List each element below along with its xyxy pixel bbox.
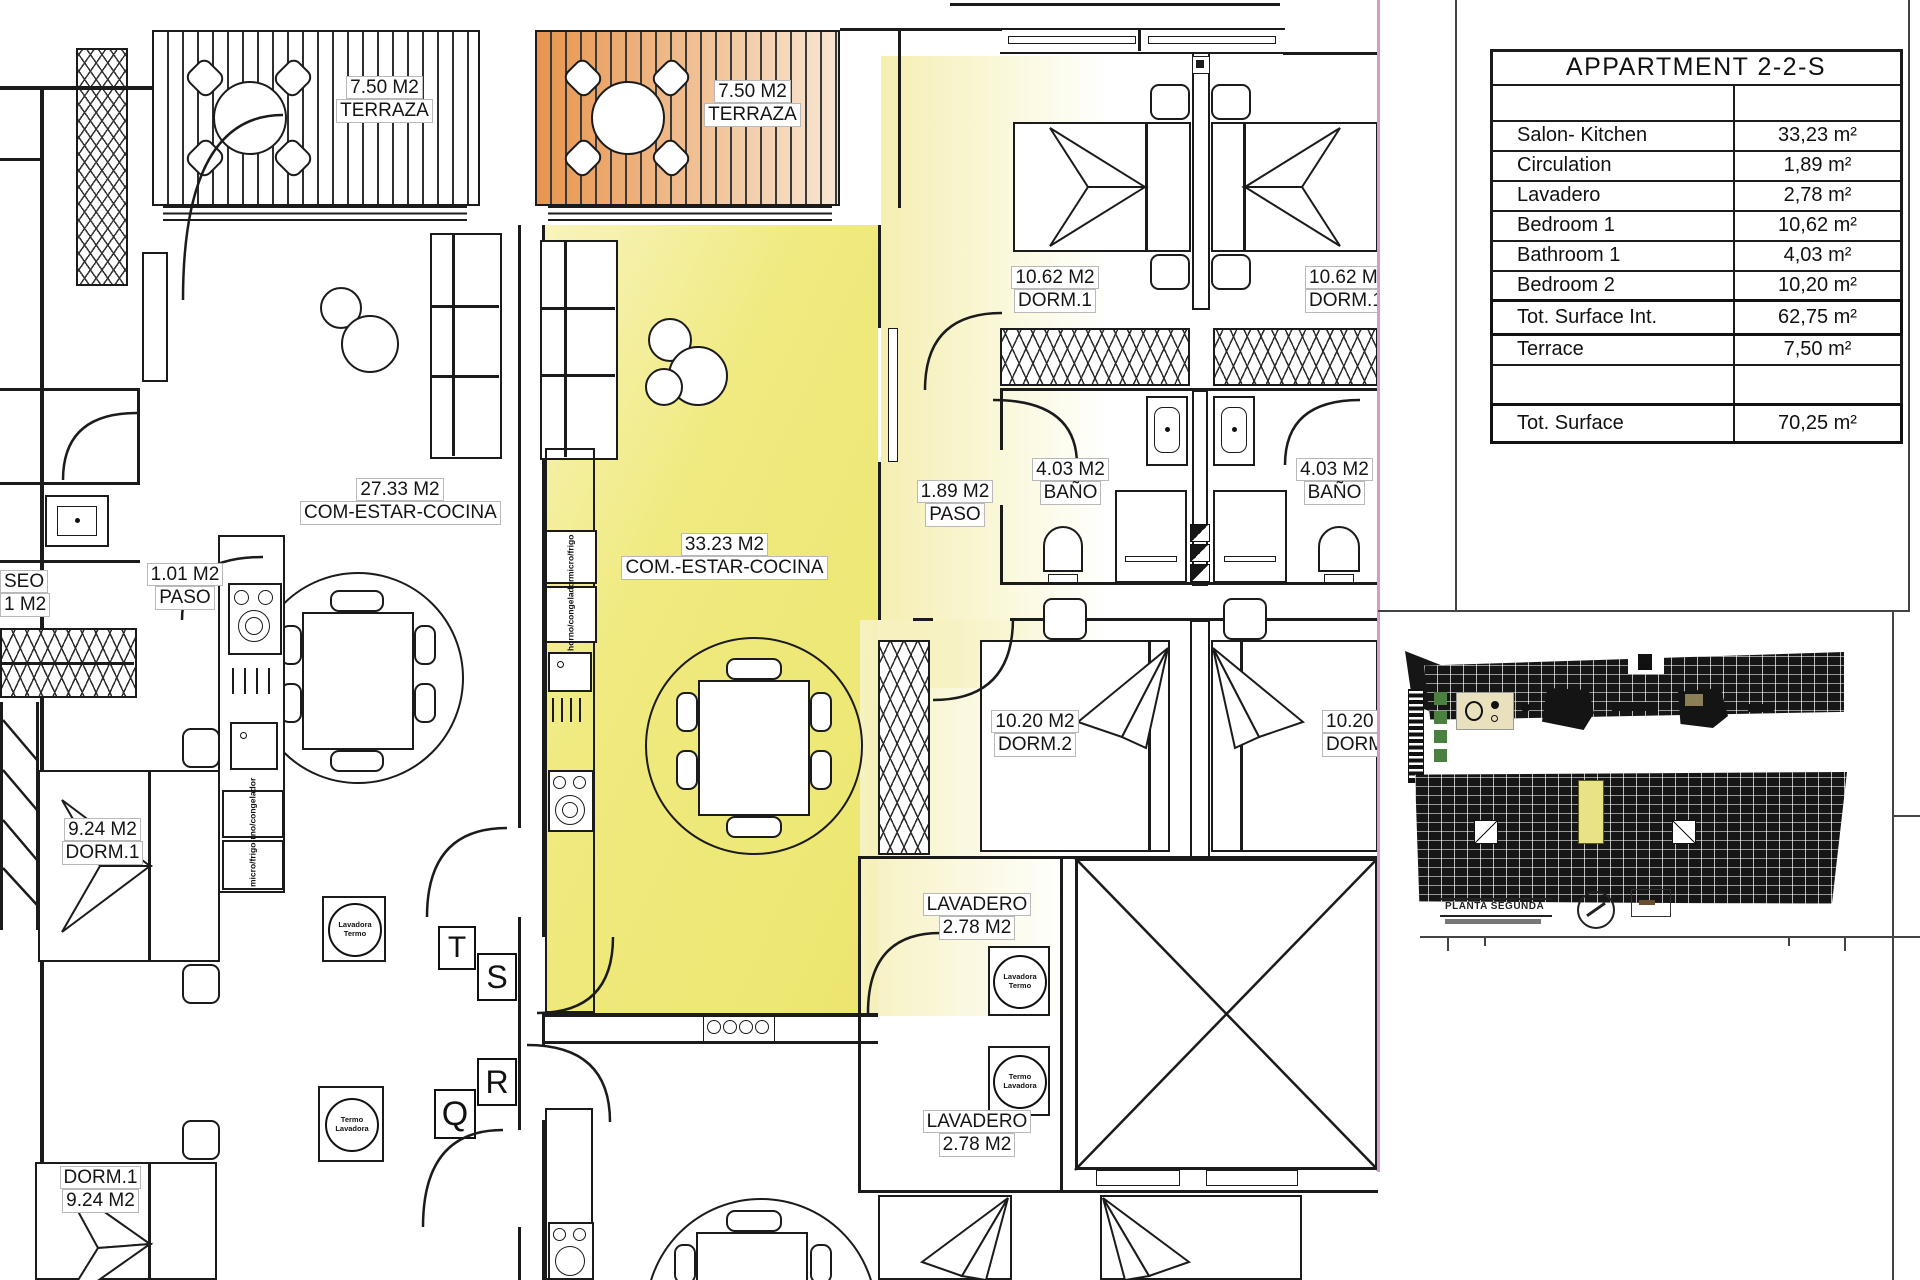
dining-table-bottom <box>696 1232 808 1280</box>
stair-letter-s: S <box>477 953 517 1001</box>
room-name: DORM.2 <box>1322 733 1378 756</box>
sink-left-kitchen <box>230 722 278 770</box>
room-name: PASO <box>925 503 984 526</box>
chair <box>726 816 782 838</box>
table-cell: Bathroom 1 <box>1492 241 1735 271</box>
washer-drum: Termo Lavadora <box>325 1098 379 1152</box>
terraza-center-label: 7.50 M2 TERRAZA <box>690 80 815 127</box>
round-table <box>591 81 665 155</box>
compass <box>1577 891 1615 929</box>
wall-line <box>1000 388 1378 391</box>
wall-line <box>1283 52 1378 55</box>
wall-line <box>858 856 861 1190</box>
chair <box>561 136 605 180</box>
room-name: BAÑO <box>1040 481 1102 504</box>
bed-dorm1-left <box>38 770 220 962</box>
oven-label: horno/congelador <box>547 588 595 641</box>
wall-sink-right <box>1213 396 1255 466</box>
area-text: 2.78 M2 <box>939 916 1016 939</box>
vent-shaft <box>1190 564 1210 582</box>
corridor-wall <box>878 462 881 620</box>
drain-dot <box>1232 427 1237 432</box>
dorm2-divider-wall <box>1190 620 1210 858</box>
oven-left: horno/congelador <box>222 790 284 838</box>
nightstand <box>1211 84 1251 120</box>
chair <box>726 1210 782 1232</box>
dorm1-right-label-clip: 10.62 M2 DORM.1 <box>1305 266 1378 314</box>
area-text: 1.01 M2 <box>147 563 224 586</box>
burner <box>573 1228 586 1241</box>
wall-line <box>0 560 140 563</box>
keyplan-legend-box <box>1631 889 1671 917</box>
shaft-door-sill <box>1206 1170 1298 1186</box>
door-arc <box>427 828 507 917</box>
table-cell: 10,62 m² <box>1734 211 1902 241</box>
wc-main <box>1043 526 1083 572</box>
room-name: TERRAZA <box>704 103 801 126</box>
nightstand <box>1223 598 1267 640</box>
dorm1-right-label: 10.62 M2 DORM.1 <box>1305 266 1378 313</box>
window-mullion <box>1138 30 1141 51</box>
dorm2-main-label: 10.20 M2 DORM.2 <box>980 710 1090 757</box>
table-cell: Terrace <box>1492 335 1735 365</box>
burner <box>245 617 263 635</box>
drain-dot <box>240 732 247 739</box>
key-plan-thumbnail: PLANTA SEGUNDA <box>1405 645 1860 945</box>
area-text: SEO <box>0 570 48 593</box>
keyplan-notch-core <box>1638 654 1652 670</box>
sink-main-kitchen <box>548 652 592 692</box>
wall-line <box>1060 856 1063 1190</box>
area-text: 1.89 M2 <box>917 480 994 503</box>
window-sill <box>1008 36 1136 44</box>
nightstand <box>1150 84 1190 120</box>
shower-bar <box>1125 556 1177 562</box>
nightstand <box>182 1120 220 1160</box>
bedroom-divider-wall <box>1192 52 1210 310</box>
wall-line <box>913 618 933 621</box>
bano-right-label: 4.03 M2 BAÑO <box>1282 458 1387 505</box>
area-text: 7.50 M2 <box>714 80 791 103</box>
wall-line <box>137 388 140 485</box>
corridor-wall <box>1000 390 1003 450</box>
vent-circle <box>739 1020 753 1034</box>
vent-circle <box>707 1020 721 1034</box>
washer-drum: Lavadora Termo <box>328 903 382 957</box>
keyplan-stairs <box>1408 689 1424 783</box>
area-text: 4.03 M2 <box>1296 458 1373 481</box>
table-title: APPARTMENT 2-2-S <box>1492 51 1902 85</box>
chair <box>183 56 227 100</box>
room-name: PASO <box>155 586 214 609</box>
room-name: BAÑO <box>1304 481 1366 504</box>
plant-left <box>341 315 399 373</box>
area-text: 27.33 M2 <box>356 478 443 501</box>
chair <box>726 658 782 680</box>
washer-main-2: Termo Lavadora <box>988 1046 1050 1116</box>
wardrobe-dorm2 <box>878 640 930 855</box>
stair-letter-r: R <box>477 1058 517 1106</box>
door-arc <box>63 413 137 480</box>
fridge-main: micro/frigo <box>545 530 597 584</box>
area-text: 9.24 M2 <box>64 818 141 841</box>
washer-main-1: Lavadora Termo <box>988 946 1050 1016</box>
washer-label: Termo <box>1009 981 1031 990</box>
wardrobe-left <box>0 628 137 698</box>
nightstand <box>1211 254 1251 290</box>
room-name: DORM.1 <box>62 841 144 864</box>
chair <box>810 1244 832 1280</box>
table-cell <box>1492 85 1735 121</box>
fridge-label: micro/frigo <box>547 532 595 582</box>
wall-line <box>0 482 140 485</box>
door-arc <box>423 1130 503 1227</box>
wall-line <box>0 388 140 391</box>
chair <box>810 692 832 732</box>
sofa-line <box>452 235 455 456</box>
keyplan-patio <box>1474 820 1498 844</box>
chair <box>330 750 384 772</box>
table-cell <box>1734 365 1902 405</box>
wall-line <box>858 1190 1378 1193</box>
pocket-door <box>888 328 898 462</box>
room-name: DORM.1 <box>60 1166 142 1189</box>
area-text: 1 M2 <box>0 593 50 616</box>
lavadero-bottom-label: LAVADERO 2.78 M2 <box>912 1110 1042 1157</box>
wc-right <box>1318 526 1360 572</box>
burner <box>573 776 586 789</box>
room-name: TERRAZA <box>336 99 433 122</box>
keyplan-glyph <box>1491 701 1499 709</box>
window-frame <box>0 702 3 930</box>
wardrobe-dorm1-right <box>1213 328 1378 386</box>
drain-dot <box>1165 427 1170 432</box>
keyplan-dash <box>1612 702 1658 711</box>
compass-needle <box>1586 902 1606 917</box>
chair <box>676 692 698 732</box>
rack-line <box>579 698 581 722</box>
keyplan-dash <box>1748 704 1774 712</box>
sofa-left <box>430 233 502 459</box>
paso-main-label: 1.89 M2 PASO <box>905 480 1005 527</box>
keyplan-green-sq <box>1434 711 1447 724</box>
keyplan-glyph <box>1465 701 1483 721</box>
washer-left-1: Lavadora Termo <box>322 896 386 962</box>
room-name: DORM.1 <box>1305 289 1378 312</box>
vent-box <box>1192 56 1210 74</box>
wall-sink-main <box>1146 396 1188 466</box>
area-text: 4.03 M2 <box>1032 458 1109 481</box>
burner <box>553 1228 566 1241</box>
area-text: 2.78 M2 <box>939 1133 1016 1156</box>
rack-line <box>244 668 246 694</box>
caption-subline <box>1445 919 1541 924</box>
burner <box>562 802 578 818</box>
window-band-top-right <box>1000 28 1285 54</box>
table-cell: Circulation <box>1492 151 1735 181</box>
party-wall <box>518 225 521 828</box>
room-name: DORM.1 <box>1014 289 1096 312</box>
rack-line <box>570 698 572 722</box>
room-name: DORM.2 <box>994 733 1076 756</box>
paso-left-label: 1.01 M2 PASO <box>130 563 240 610</box>
wall-line <box>1000 582 1378 585</box>
window-left-wall <box>0 702 40 930</box>
washer-drum: Termo Lavadora <box>993 1055 1047 1109</box>
keyplan-khaki <box>1685 694 1703 706</box>
bed-line <box>148 770 151 962</box>
caption-rule <box>1440 898 1552 900</box>
party-wall <box>518 917 521 1130</box>
dorm2-right-label-clip: 10.20 M2 DORM.2 <box>1322 710 1378 758</box>
lavadero-main-label: LAVADERO 2.78 M2 <box>912 893 1042 940</box>
keyplan-glyph <box>1491 715 1498 722</box>
rack-line <box>561 698 563 722</box>
sheet-line <box>1378 610 1910 612</box>
wall-line <box>0 86 152 90</box>
dining-table-main <box>698 680 810 816</box>
vent-circle <box>723 1020 737 1034</box>
room-name: COM.-ESTAR-COCINA <box>621 556 827 579</box>
table-cell: 4,03 m² <box>1734 241 1902 271</box>
washer-label: Lavadora <box>1003 1081 1036 1090</box>
washer-left-2: Termo Lavadora <box>318 1086 384 1162</box>
terrace-left-table-set <box>190 58 310 178</box>
bed-line <box>1240 640 1243 852</box>
keyplan-glyph <box>1521 703 1530 712</box>
wardrobe-rail <box>2 662 134 665</box>
table-cell: 62,75 m² <box>1734 301 1902 335</box>
area-text: 10.20 M2 <box>1322 710 1378 733</box>
sofa-line <box>542 307 615 310</box>
nightstand <box>1150 254 1190 290</box>
sofa-line <box>542 374 615 377</box>
keyplan-green-sq <box>1434 730 1447 743</box>
washer-drum: Lavadora Termo <box>993 955 1047 1009</box>
chair <box>810 750 832 790</box>
corridor-wall <box>878 225 881 328</box>
door-arc <box>1285 400 1360 465</box>
bed-line <box>1148 640 1151 852</box>
sofa-line <box>564 242 567 457</box>
drain-dot <box>557 661 564 668</box>
shaft-box <box>1075 858 1378 1170</box>
keyplan-patio <box>1672 820 1696 844</box>
bed-bottom-left <box>878 1195 1012 1280</box>
chair <box>561 56 605 100</box>
burner <box>553 776 566 789</box>
table-cell <box>1734 85 1902 121</box>
terrace-center-table-set <box>568 58 688 178</box>
rack-line <box>552 698 554 722</box>
hob-main <box>548 770 594 832</box>
window-sill <box>163 206 467 221</box>
shaft-door-sill <box>1096 1170 1180 1186</box>
rack-line <box>256 668 258 694</box>
sheet-tick <box>1892 815 1920 817</box>
room-name: COM-ESTAR-COCINA <box>300 501 501 524</box>
dorm1-main-label: 10.62 M2 DORM.1 <box>1000 266 1110 313</box>
keyplan-block <box>1542 688 1594 730</box>
apartment-summary-table: APPARTMENT 2-2-S Salon- Kitchen33,23 m² … <box>1490 49 1903 444</box>
sheet-line <box>1455 0 1457 611</box>
hob-bottom <box>548 1222 594 1280</box>
wall-line <box>898 28 901 208</box>
vent-shaft <box>1190 524 1210 542</box>
keyplan-notch <box>1628 650 1664 674</box>
washer-label: Termo <box>344 929 366 938</box>
bed-line <box>1145 122 1148 252</box>
wardrobe-dorm1-main <box>1000 328 1190 386</box>
keyplan-highlight-unit <box>1578 780 1604 844</box>
table-cell: Bedroom 2 <box>1492 271 1735 301</box>
shower-right <box>1213 490 1287 583</box>
boundary-line-pink <box>1377 0 1380 1172</box>
dorm1-left-label: 9.24 M2 DORM.1 <box>50 818 155 865</box>
dorm1-left-bottom-label: DORM.1 9.24 M2 <box>48 1166 153 1213</box>
floorplan-sheet: Lavadora Termo Termo Lavadora <box>0 0 1920 1280</box>
table-cell: 2,78 m² <box>1734 181 1902 211</box>
sofa-main <box>540 240 618 460</box>
stair-letter-t: T <box>438 926 476 970</box>
dining-table-left <box>302 612 414 750</box>
table-cell: Lavadero <box>1492 181 1735 211</box>
area-text: 7.50 M2 <box>346 76 423 99</box>
terraza-left-label: 7.50 M2 TERRAZA <box>322 76 447 123</box>
wall-line <box>840 28 1002 31</box>
wall-line <box>0 158 42 161</box>
console-left <box>142 252 168 382</box>
washer-label: Lavadora <box>335 1124 368 1133</box>
keyplan-green-sq <box>1434 692 1447 705</box>
table-cell-total: Tot. Surface <box>1492 405 1735 443</box>
room-name: LAVADERO <box>923 893 1032 916</box>
sofa-line <box>432 375 499 378</box>
stairs-hatch-strip <box>76 48 128 286</box>
aseo-left-label: SEO 1 M2 <box>0 570 52 617</box>
round-table <box>213 81 287 155</box>
rack-line <box>232 668 234 694</box>
vent-circles-box <box>703 1016 775 1042</box>
legend-mark <box>1639 900 1655 905</box>
table-cell: Salon- Kitchen <box>1492 121 1735 151</box>
bed-dorm1-right <box>1211 122 1378 252</box>
wall-line <box>950 3 1280 6</box>
aseo-sink <box>45 495 109 547</box>
table-cell <box>1492 365 1735 405</box>
nightstand <box>182 964 220 1004</box>
burner <box>555 1246 585 1276</box>
oven-main: horno/congelador <box>545 586 597 643</box>
oven-label: horno/congelador <box>224 792 282 836</box>
chair <box>330 590 384 612</box>
plant-main <box>645 368 683 406</box>
shower-main <box>1115 490 1187 583</box>
area-text: 10.62 M2 <box>1305 266 1378 289</box>
table-cell: 33,23 m² <box>1734 121 1902 151</box>
window-sill <box>548 206 832 221</box>
chair <box>183 136 227 180</box>
fridge-left: micro/frigo <box>222 840 284 890</box>
chair <box>649 136 693 180</box>
shower-bar <box>1224 556 1276 562</box>
stair-letter-q: Q <box>434 1089 476 1139</box>
nightstand <box>182 728 220 768</box>
keyplan-green-sq <box>1434 749 1447 762</box>
area-text: 10.20 M2 <box>991 710 1078 733</box>
caption-rule <box>1440 915 1552 917</box>
chair <box>674 1244 696 1280</box>
table-cell: 7,50 m² <box>1734 335 1902 365</box>
table-cell-total-int: Tot. Surface Int. <box>1492 301 1735 335</box>
keyplan-caption: PLANTA SEGUNDA <box>1445 901 1544 912</box>
rack-line <box>268 668 270 694</box>
bed-bottom-right <box>1100 1195 1302 1280</box>
party-wall <box>518 1227 521 1280</box>
area-text: 10.62 M2 <box>1011 266 1098 289</box>
bed-line <box>1243 122 1246 252</box>
salon-main-label: 33.23 M2 COM.-ESTAR-COCINA <box>612 533 837 580</box>
chair <box>414 625 436 665</box>
bed-dorm1-main <box>1013 122 1191 252</box>
table-cell: 70,25 m² <box>1734 405 1902 443</box>
dorm2-right-label: 10.20 M2 DORM.2 <box>1322 710 1378 757</box>
bano-main-label: 4.03 M2 BAÑO <box>1018 458 1123 505</box>
vent-circle <box>755 1020 769 1034</box>
area-text: 9.24 M2 <box>62 1189 139 1212</box>
vent-core <box>1196 60 1204 68</box>
salon-left-label: 27.33 M2 COM-ESTAR-COCINA <box>300 478 500 525</box>
keyplan-beige-box <box>1456 692 1514 730</box>
fridge-label: micro/frigo <box>224 842 282 888</box>
sheet-line <box>1908 0 1910 611</box>
window-sill <box>1148 36 1276 44</box>
sheet-line <box>1892 612 1894 1280</box>
chair <box>676 750 698 790</box>
chair <box>414 683 436 723</box>
table-cell: 1,89 m² <box>1734 151 1902 181</box>
chair <box>271 136 315 180</box>
sofa-line <box>432 305 499 308</box>
drain-dot <box>75 518 80 523</box>
vent-shaft <box>1190 544 1210 562</box>
table-cell: Bedroom 1 <box>1492 211 1735 241</box>
area-text: 33.23 M2 <box>681 533 768 556</box>
room-name: LAVADERO <box>923 1110 1032 1133</box>
nightstand <box>1043 598 1087 640</box>
table-cell: 10,20 m² <box>1734 271 1902 301</box>
burner <box>258 590 273 605</box>
